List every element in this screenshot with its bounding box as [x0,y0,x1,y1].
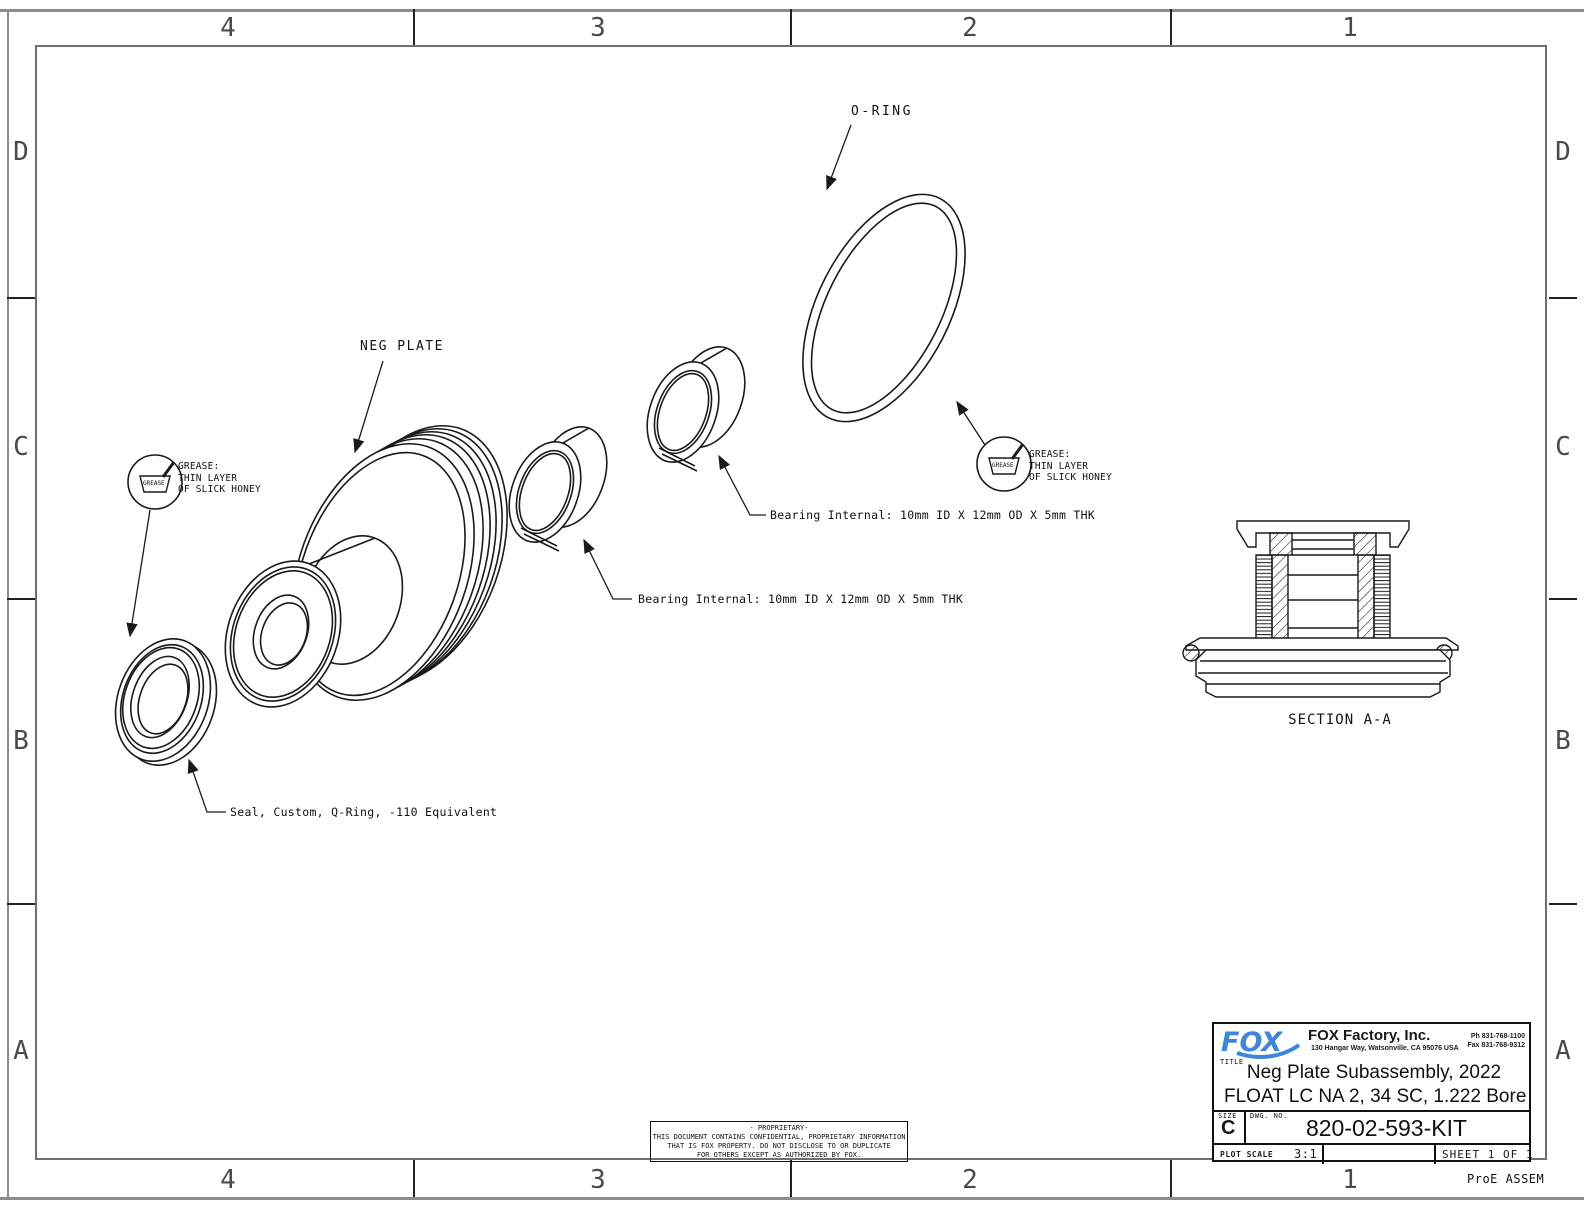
grease-note-line2: THIN LAYER [178,473,261,485]
grease-symbol-text-right: GREASE [992,462,1014,469]
proprietary-notice: - PROPRIETARY- THIS DOCUMENT CONTAINS CO… [650,1121,908,1162]
grease-note-line1: GREASE: [1029,449,1112,461]
o-ring-part [769,168,998,447]
grease-symbol-text-left: GREASE [143,480,165,487]
proprietary-line1: - PROPRIETARY- [651,1124,907,1133]
grease-note-line1: GREASE: [178,461,261,473]
dwg-no-value: 820-02-593-KIT [1244,1115,1529,1142]
company-fax: Fax 831-768-9312 [1467,1042,1525,1049]
seal-part [99,625,233,778]
fox-logo-text: FOX [1221,1027,1283,1058]
sheet-value: SHEET 1 OF 1 [1442,1148,1533,1161]
bearing-part-upper [634,337,758,472]
section-label: SECTION A-A [1240,712,1440,728]
proprietary-line2: THIS DOCUMENT CONTAINS CONFIDENTIAL, PRO… [651,1133,907,1142]
grease-note-line3: OF SLICK HONEY [178,484,261,496]
company-address: 130 Hangar Way, Watsonville, CA 95076 US… [1311,1045,1459,1052]
grease-note-line3: OF SLICK HONEY [1029,472,1112,484]
title-block: FOX FOX Factory, Inc. 130 Hangar Way, Wa… [1212,1022,1531,1162]
neg-plate-label: NEG PLATE [360,339,444,354]
bottom-row-divider1 [1322,1143,1324,1164]
o-ring-label: O-RING [851,104,913,119]
neg-plate-part [206,400,541,725]
footer-note: ProE ASSEM [1467,1172,1544,1186]
grease-note-left: GREASE: THIN LAYER OF SLICK HONEY [178,461,261,496]
size-value: C [1221,1117,1235,1140]
drawing-title-line2: FLOAT LC NA 2, 34 SC, 1.222 Bore [1224,1086,1524,1108]
plot-scale-label: PLOT SCALE [1220,1150,1273,1159]
fox-logo: FOX [1219,1027,1305,1059]
bearing-label-upper: Bearing Internal: 10mm ID X 12mm OD X 5m… [770,508,1095,522]
company-phone: Ph 831-768-1100 [1471,1033,1525,1040]
grease-note-right: GREASE: THIN LAYER OF SLICK HONEY [1029,449,1112,484]
drawing-title-line1: Neg Plate Subassembly, 2022 [1224,1062,1524,1084]
bottom-row-divider2 [1434,1143,1436,1164]
proprietary-line3: THAT IS FOX PROPERTY. DO NOT DISCLOSE TO… [651,1142,907,1151]
company-name: FOX Factory, Inc. [1308,1027,1430,1044]
seal-label: Seal, Custom, Q-Ring, -110 Equivalent [230,805,497,819]
bearing-part-lower [496,417,620,552]
plot-scale-value: 3:1 [1294,1147,1317,1161]
bearing-label-lower: Bearing Internal: 10mm ID X 12mm OD X 5m… [638,592,963,606]
grease-note-line2: THIN LAYER [1029,461,1112,473]
section-view [1183,521,1458,697]
title-block-divider2 [1214,1143,1529,1145]
drawing-sheet: 4 3 2 1 4 3 2 1 D C B A D C B A [0,0,1584,1224]
proprietary-line4: FOR OTHERS EXCEPT AS AUTHORIZED BY FOX. [651,1151,907,1160]
